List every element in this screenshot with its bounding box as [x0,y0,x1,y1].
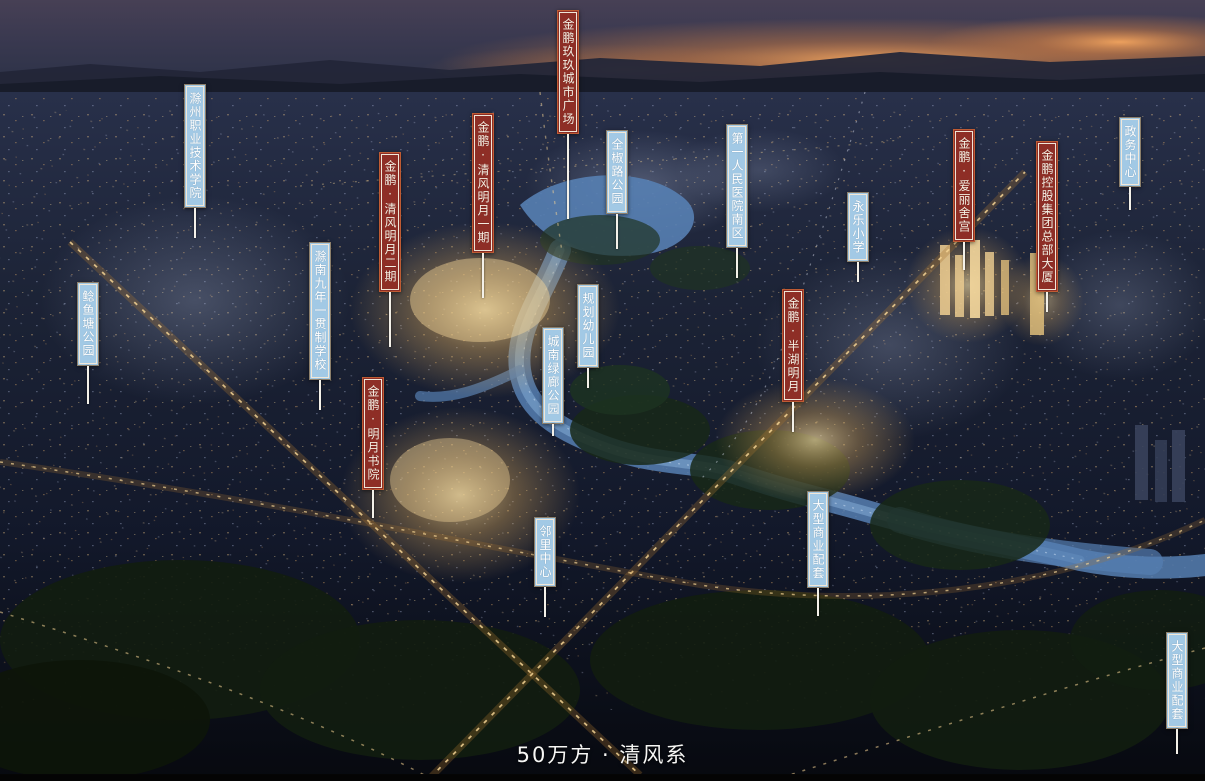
masterplan-rendering: 金鹏玖玖城市广场 滁州职业技术学院 金鹏·清风明月二期 金鹏·清风明月一期 全椒 [0,0,1205,781]
label-flag: 滁南九年一贯制学校 [309,242,331,380]
map-label-chengnan-green-corridor-park: 城南绿廊公园 [542,327,564,436]
label-text-jinpeng-qingfeng-mingyue-phase-1: 金鹏·清风明月一期 [477,121,489,245]
label-text-government-affairs-center: 政务中心 [1124,125,1136,179]
label-flag: 规划幼儿园 [577,284,599,368]
map-label-jinpeng-mingyue-academy: 金鹏·明月书院 [362,377,384,518]
map-label-government-affairs-center: 政务中心 [1119,117,1141,210]
map-label-quanjiao-road-park: 全椒路公园 [606,130,628,249]
map-label-yongle-primary-school: 永乐小学 [847,192,869,282]
leader-line [319,380,321,410]
leader-line [372,490,374,518]
labels-layer: 金鹏玖玖城市广场 滁州职业技术学院 金鹏·清风明月二期 金鹏·清风明月一期 全椒 [0,0,1205,781]
map-label-jinpeng-elysee-palace: 金鹏·爱丽舍宫 [953,129,975,270]
leader-line [792,402,794,432]
map-label-nianyutang-park: 鲶鱼塘公园 [77,282,99,404]
map-label-jinpeng-qingfeng-mingyue-phase-1: 金鹏·清风明月一期 [472,113,494,298]
label-flag: 金鹏·爱丽舍宫 [953,129,975,242]
label-text-jinpeng-jiujiu-city-plaza: 金鹏玖玖城市广场 [562,18,574,126]
label-flag: 大型商业配套 [807,491,829,588]
leader-line [736,248,738,278]
label-text-chunan-nine-year-school: 滁南九年一贯制学校 [314,250,326,372]
label-text-jinpeng-banhu-mingyue: 金鹏·半湖明月 [787,297,799,394]
label-flag: 政务中心 [1119,117,1141,187]
bottom-letterbox-bar [0,775,1205,781]
label-text-chengnan-green-corridor-park: 城南绿廊公园 [547,335,559,416]
leader-line [1046,292,1048,312]
label-flag: 金鹏控股集团总部大厦 [1036,141,1058,292]
label-flag: 金鹏·清风明月一期 [472,113,494,253]
map-label-jinpeng-jiujiu-city-plaza: 金鹏玖玖城市广场 [557,10,579,219]
label-text-jinpeng-elysee-palace: 金鹏·爱丽舍宫 [958,137,970,234]
label-text-first-peoples-hospital-south-district: 第一人民医院南区 [731,132,743,240]
leader-line [482,253,484,298]
label-text-neighborhood-center: 邻里中心 [539,525,551,579]
map-label-chuzhou-vocational-technical-college: 滁州职业技术学院 [184,84,206,238]
leader-line [552,424,554,436]
label-text-chuzhou-vocational-technical-college: 滁州职业技术学院 [189,92,201,200]
map-label-neighborhood-center: 邻里中心 [534,517,556,617]
leader-line [1129,187,1131,210]
label-flag: 金鹏·清风明月二期 [379,152,401,292]
label-flag: 金鹏·半湖明月 [782,289,804,402]
leader-line [616,214,618,249]
label-text-nianyutang-park: 鲶鱼塘公园 [82,290,94,358]
label-text-jinpeng-holdings-group-headquarters: 金鹏控股集团总部大厦 [1041,149,1053,284]
map-label-large-commercial-facilities-southeast: 大型商业配套 [1166,632,1188,754]
project-tagline: 50万方 · 清风系 [0,739,1205,769]
label-text-jinpeng-mingyue-academy: 金鹏·明月书院 [367,385,379,482]
map-label-planned-kindergarten: 规划幼儿园 [577,284,599,388]
map-label-jinpeng-holdings-group-headquarters: 金鹏控股集团总部大厦 [1036,141,1058,312]
leader-line [857,262,859,282]
leader-line [963,242,965,270]
map-label-first-peoples-hospital-south-district: 第一人民医院南区 [726,124,748,278]
leader-line [389,292,391,347]
label-text-yongle-primary-school: 永乐小学 [852,200,864,254]
label-flag: 滁州职业技术学院 [184,84,206,208]
label-text-large-commercial-facilities-southeast: 大型商业配套 [1171,640,1183,721]
label-flag: 大型商业配套 [1166,632,1188,729]
label-text-planned-kindergarten: 规划幼儿园 [582,292,594,360]
map-label-large-commercial-facilities-central: 大型商业配套 [807,491,829,616]
label-flag: 城南绿廊公园 [542,327,564,424]
label-flag: 永乐小学 [847,192,869,262]
leader-line [87,366,89,404]
leader-line [567,134,569,219]
label-text-jinpeng-qingfeng-mingyue-phase-2: 金鹏·清风明月二期 [384,160,396,284]
leader-line [817,588,819,616]
leader-line [587,368,589,388]
label-flag: 金鹏玖玖城市广场 [557,10,579,134]
label-text-quanjiao-road-park: 全椒路公园 [611,138,623,206]
label-flag: 金鹏·明月书院 [362,377,384,490]
label-flag: 邻里中心 [534,517,556,587]
label-flag: 全椒路公园 [606,130,628,214]
leader-line [544,587,546,617]
leader-line [194,208,196,238]
label-flag: 鲶鱼塘公园 [77,282,99,366]
map-label-chunan-nine-year-school: 滁南九年一贯制学校 [309,242,331,410]
map-label-jinpeng-banhu-mingyue: 金鹏·半湖明月 [782,289,804,432]
label-flag: 第一人民医院南区 [726,124,748,248]
map-label-jinpeng-qingfeng-mingyue-phase-2: 金鹏·清风明月二期 [379,152,401,347]
label-text-large-commercial-facilities-central: 大型商业配套 [812,499,824,580]
